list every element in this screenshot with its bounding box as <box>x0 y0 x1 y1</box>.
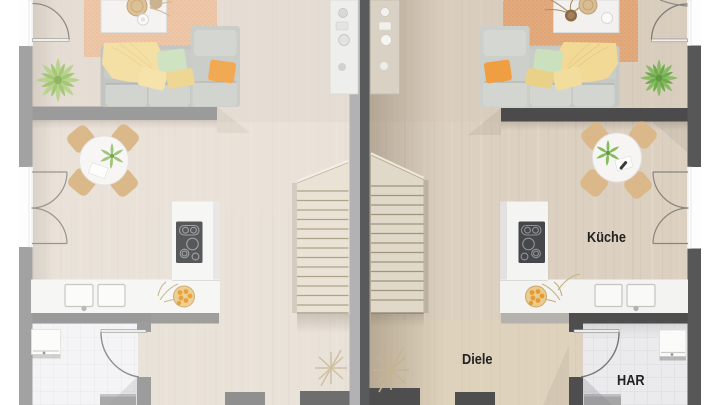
svg-text:HAR: HAR <box>617 371 645 388</box>
svg-text:Küche: Küche <box>587 228 626 245</box>
svg-text:Diele: Diele <box>462 350 493 367</box>
